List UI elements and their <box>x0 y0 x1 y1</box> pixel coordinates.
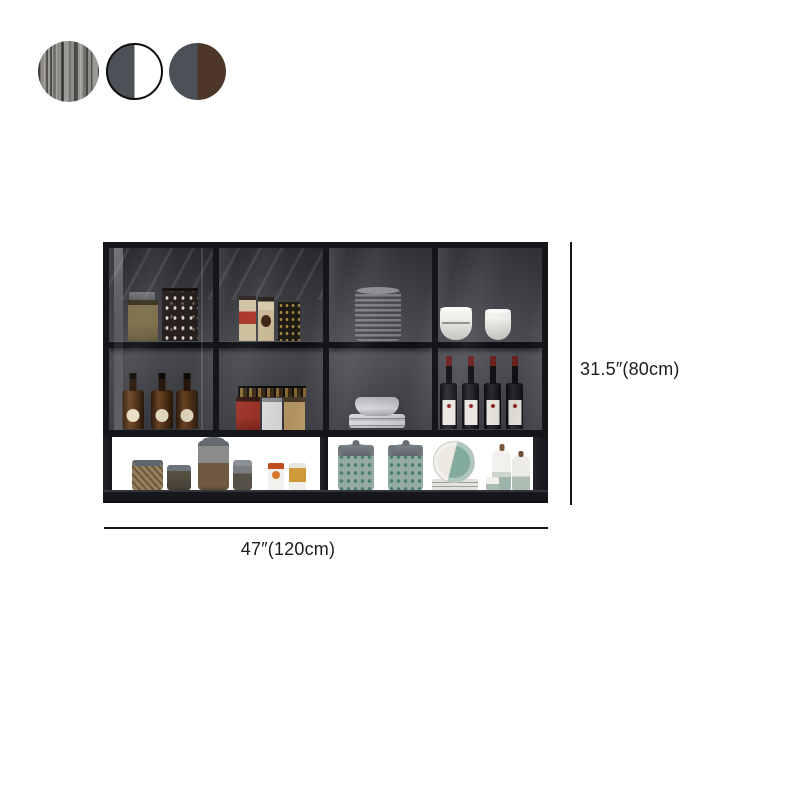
width-dimension-line <box>104 527 548 529</box>
plate-display-group <box>430 441 480 490</box>
cabinet-shelf <box>438 341 542 348</box>
plate-pile <box>349 414 405 428</box>
bottom-board <box>103 490 548 503</box>
liquor-bottle <box>122 390 144 429</box>
glass-door-section-1 <box>109 248 213 430</box>
product-image-canvas: 31.5″(80cm) 47″(120cm) <box>0 0 800 800</box>
spice-jar-row <box>238 386 306 397</box>
gold-flecked-carton <box>278 302 300 341</box>
glass-door-section-3 <box>329 248 433 430</box>
glass-pane-edge <box>201 248 203 430</box>
patterned-box <box>162 288 198 344</box>
side-panel-right <box>533 437 548 490</box>
tan-box <box>284 398 305 430</box>
width-dimension-label: 47″(120cm) <box>104 539 472 560</box>
small-shaker <box>486 477 499 490</box>
food-carton <box>239 296 256 341</box>
glass-door-upper-cabinet <box>103 242 548 437</box>
dark-jar <box>167 465 191 490</box>
swatch-grey-wood-grain[interactable] <box>38 41 99 102</box>
white-box <box>262 398 282 430</box>
grey-plate-stack <box>355 289 401 341</box>
ceiling-reflection <box>219 248 323 300</box>
spice-bottle-amber <box>289 463 306 490</box>
twine-jar <box>132 460 163 490</box>
white-bowl <box>485 309 511 340</box>
wine-bottle <box>462 383 479 429</box>
glass-door-section-4 <box>438 248 542 430</box>
height-dimension-label: 31.5″(80cm) <box>580 359 680 380</box>
shelf-reflection <box>129 292 155 300</box>
wall-cabinet-illustration <box>103 242 548 503</box>
small-glass-jar <box>233 460 252 490</box>
teal-canister <box>388 445 423 490</box>
height-dimension-line <box>570 242 572 505</box>
wine-bottle <box>440 383 457 429</box>
tan-box <box>128 300 158 341</box>
cabinet-shelf <box>219 341 323 348</box>
wine-bottle <box>506 383 523 429</box>
glass-door-cells <box>109 248 542 430</box>
cabinet-shelf <box>329 341 433 348</box>
side-panel-left <box>103 437 112 490</box>
open-lower-shelf <box>103 437 548 503</box>
center-divider <box>320 437 328 490</box>
white-plate-stack <box>349 394 405 428</box>
teal-canister <box>338 445 374 490</box>
glass-reflection-streak <box>114 248 123 430</box>
shallow-bowl <box>355 397 399 416</box>
wine-bottle <box>484 383 501 429</box>
swatch-grey-white[interactable] <box>106 43 163 100</box>
cabinet-shelf <box>109 341 213 348</box>
liquor-bottle <box>151 390 173 429</box>
swatch-grey-brown[interactable] <box>169 43 226 100</box>
ceramic-bottle <box>512 456 530 490</box>
jar-lid <box>135 460 160 466</box>
liquor-bottle <box>176 390 198 429</box>
spice-bottle-orange <box>268 463 284 490</box>
food-carton <box>258 297 274 341</box>
white-bowl-stack <box>440 307 472 340</box>
glass-door-section-2 <box>219 248 323 430</box>
tall-storage-jar <box>198 441 229 490</box>
red-box <box>236 397 260 430</box>
